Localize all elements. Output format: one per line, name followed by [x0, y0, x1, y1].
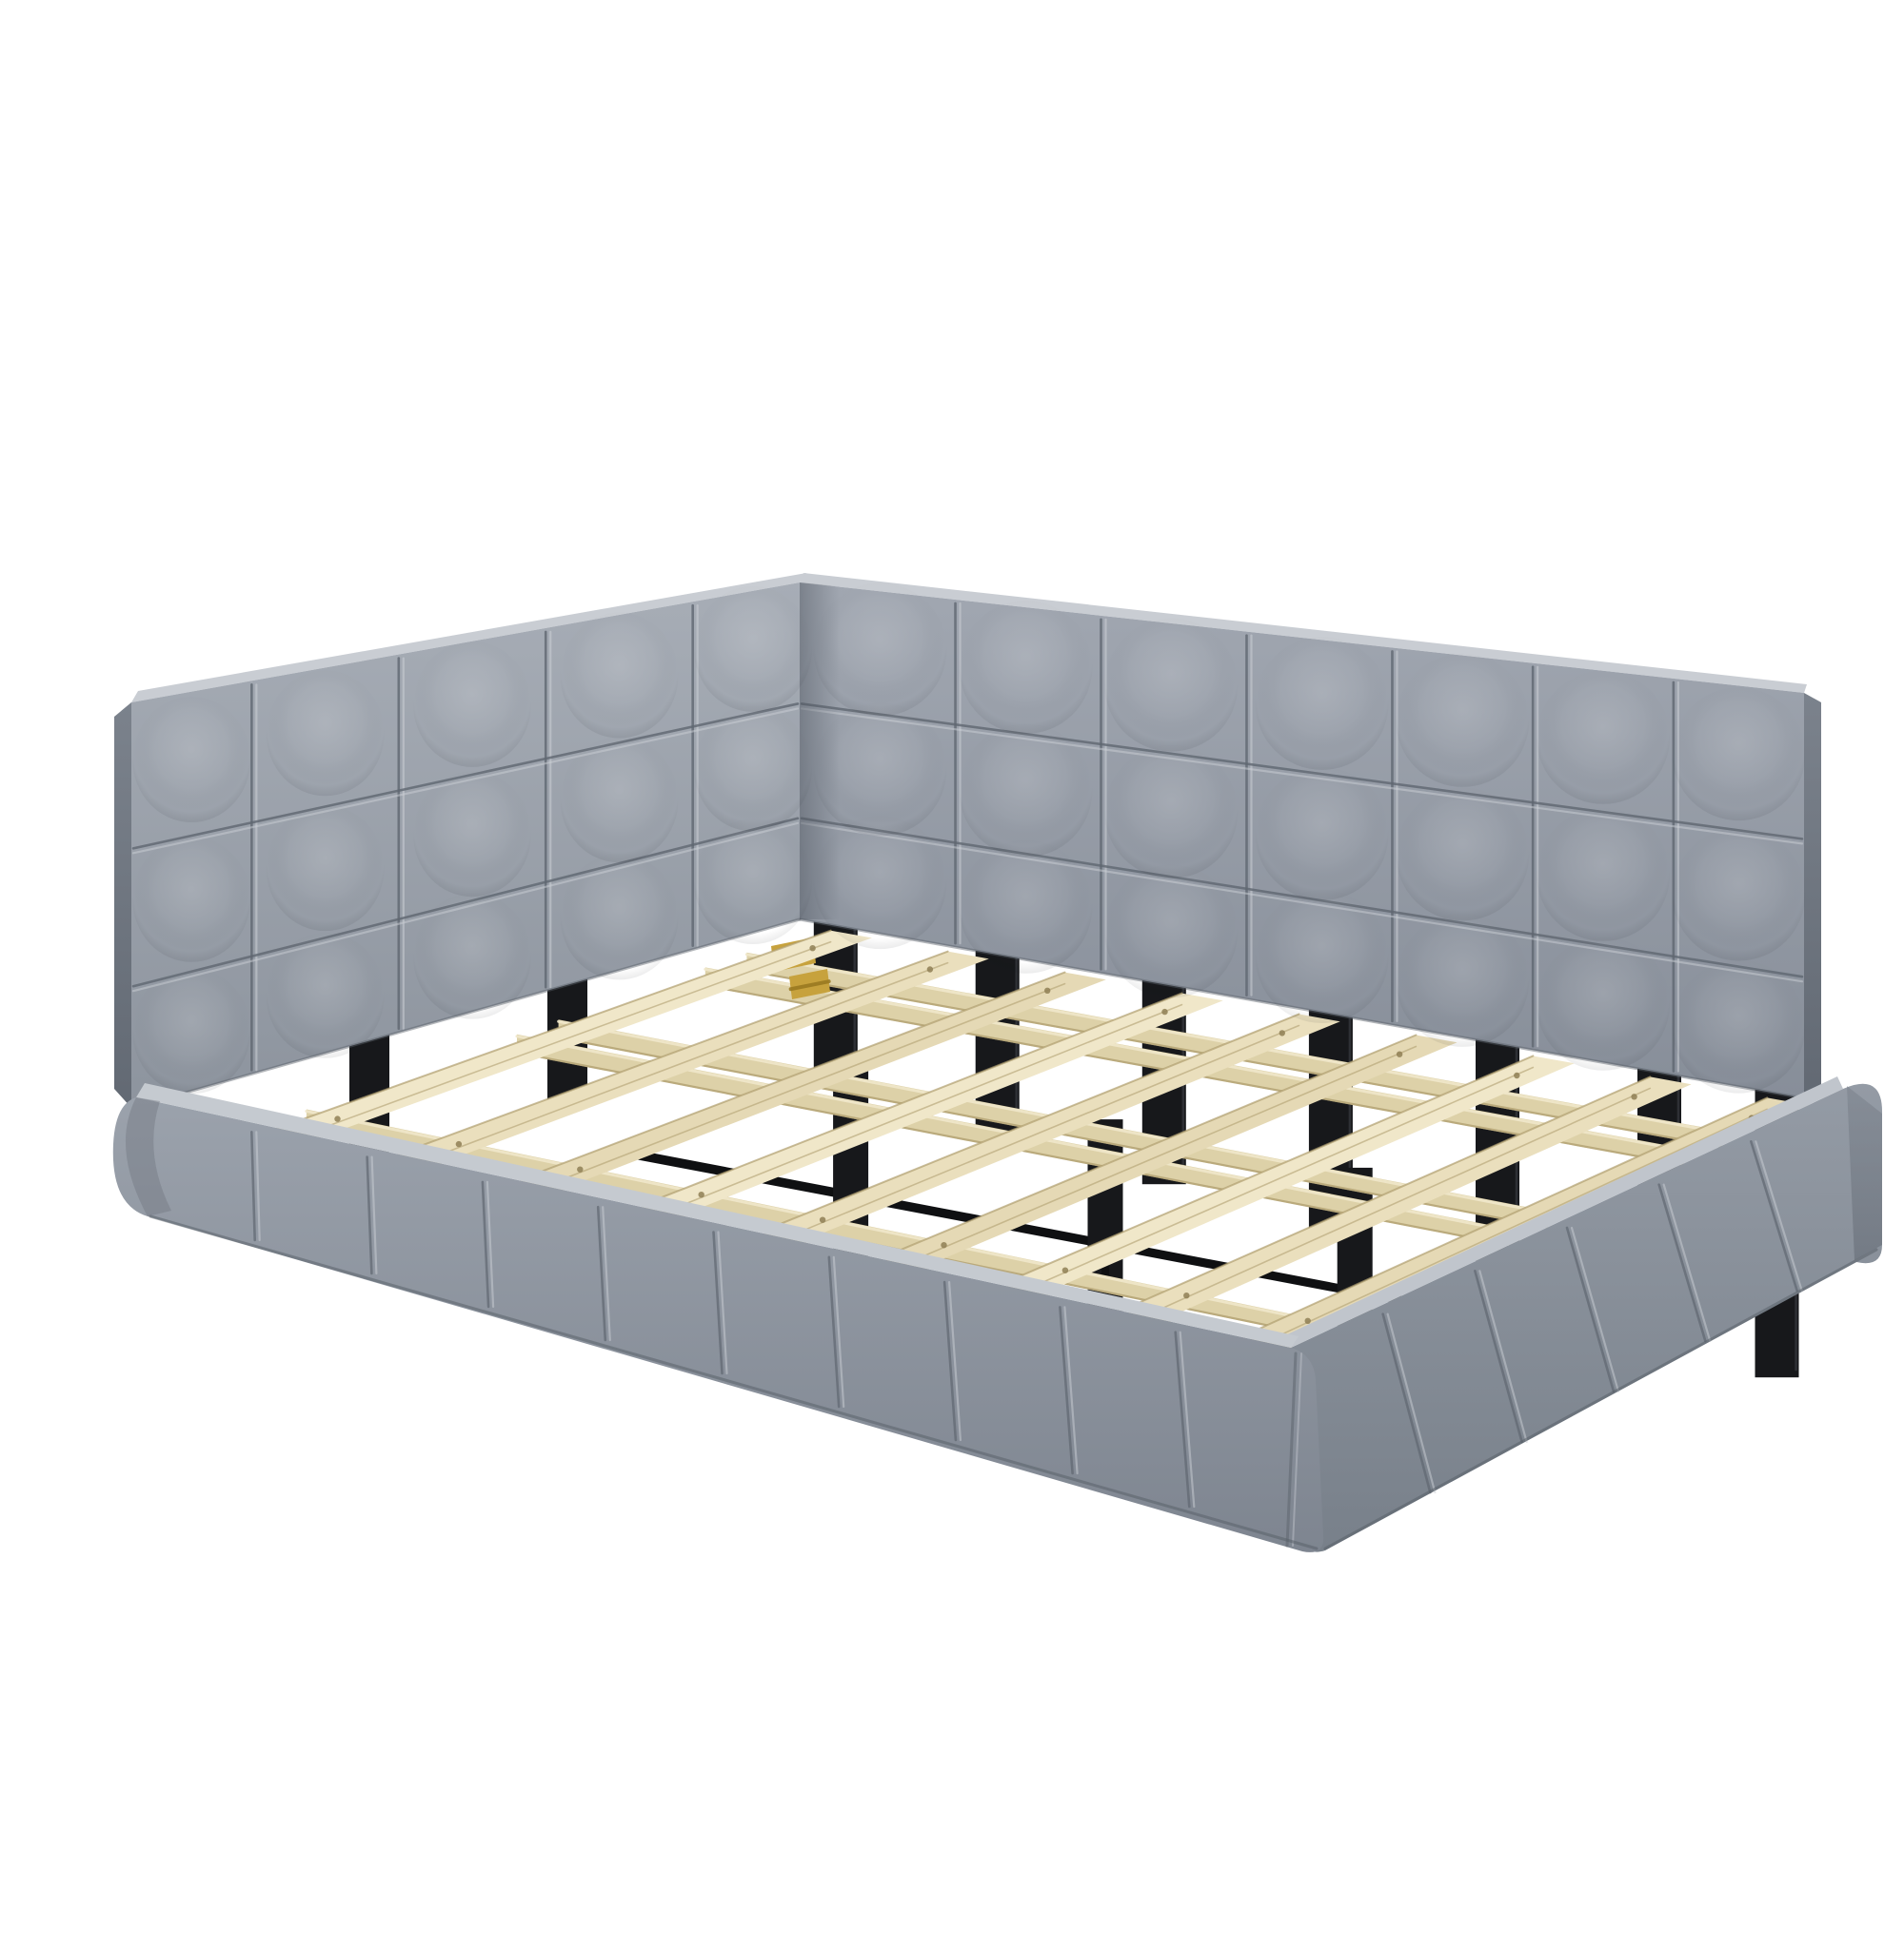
- tuft-pillow: [1537, 671, 1670, 804]
- tuft-pillow: [1537, 808, 1670, 941]
- slat-screw: [1397, 1052, 1402, 1057]
- tuft-pillow: [694, 819, 812, 944]
- slat-screw: [456, 1141, 462, 1147]
- tuft-pillow: [1672, 828, 1805, 961]
- tuft-pillow: [694, 586, 812, 712]
- slat-screw: [577, 1167, 583, 1173]
- tuft-pillow: [1537, 937, 1670, 1071]
- tuft-pillow: [1672, 687, 1805, 820]
- tuft-pillow: [132, 697, 250, 822]
- slat-screw: [809, 945, 815, 951]
- tuft-pillow: [1672, 960, 1805, 1094]
- tuft-pillow: [132, 968, 250, 1094]
- slat-screw: [927, 966, 933, 972]
- slat-screw: [699, 1192, 704, 1197]
- product-photo: Product photo of a gray velvet upholster…: [38, 15, 1904, 1919]
- tuft-pillow: [1396, 787, 1529, 920]
- bed-illustration: [38, 15, 1904, 1919]
- tuft-pillow: [561, 613, 679, 739]
- slat-screw: [1631, 1094, 1636, 1099]
- tuft-pillow: [1104, 745, 1238, 878]
- tuft-pillow: [959, 601, 1092, 734]
- slat-screw: [1183, 1293, 1189, 1298]
- tuft-pillow: [413, 771, 531, 897]
- tuft-pillow: [959, 840, 1092, 974]
- slat-screw: [1044, 988, 1050, 994]
- tuft-pillow: [1104, 619, 1238, 752]
- slat-screw: [1305, 1318, 1311, 1324]
- tuft-pillow: [561, 854, 679, 979]
- tuft-pillow: [267, 670, 385, 796]
- tuft-pillow: [959, 724, 1092, 858]
- tuft-pillow: [561, 737, 679, 862]
- tuft-pillow: [1256, 637, 1389, 770]
- slat-screw: [334, 1115, 340, 1121]
- tuft-pillow: [1256, 767, 1389, 900]
- slat-screw: [1279, 1030, 1285, 1036]
- slat-screw: [1062, 1268, 1068, 1273]
- slat-screw: [941, 1242, 946, 1248]
- tuft-pillow: [694, 706, 812, 832]
- slat-screw: [1514, 1073, 1519, 1078]
- tuft-pillow: [1396, 914, 1529, 1047]
- slat-screw: [820, 1217, 825, 1223]
- headboard-side-face: [114, 702, 131, 1108]
- tuft-pillow: [1396, 654, 1529, 787]
- tuft-pillow: [413, 641, 531, 767]
- back-panel-end-face: [1804, 693, 1821, 1098]
- tuft-pillow: [267, 933, 385, 1058]
- slat-screw: [1161, 1009, 1167, 1015]
- tuft-pillow: [132, 837, 250, 962]
- tuft-pillow: [267, 805, 385, 931]
